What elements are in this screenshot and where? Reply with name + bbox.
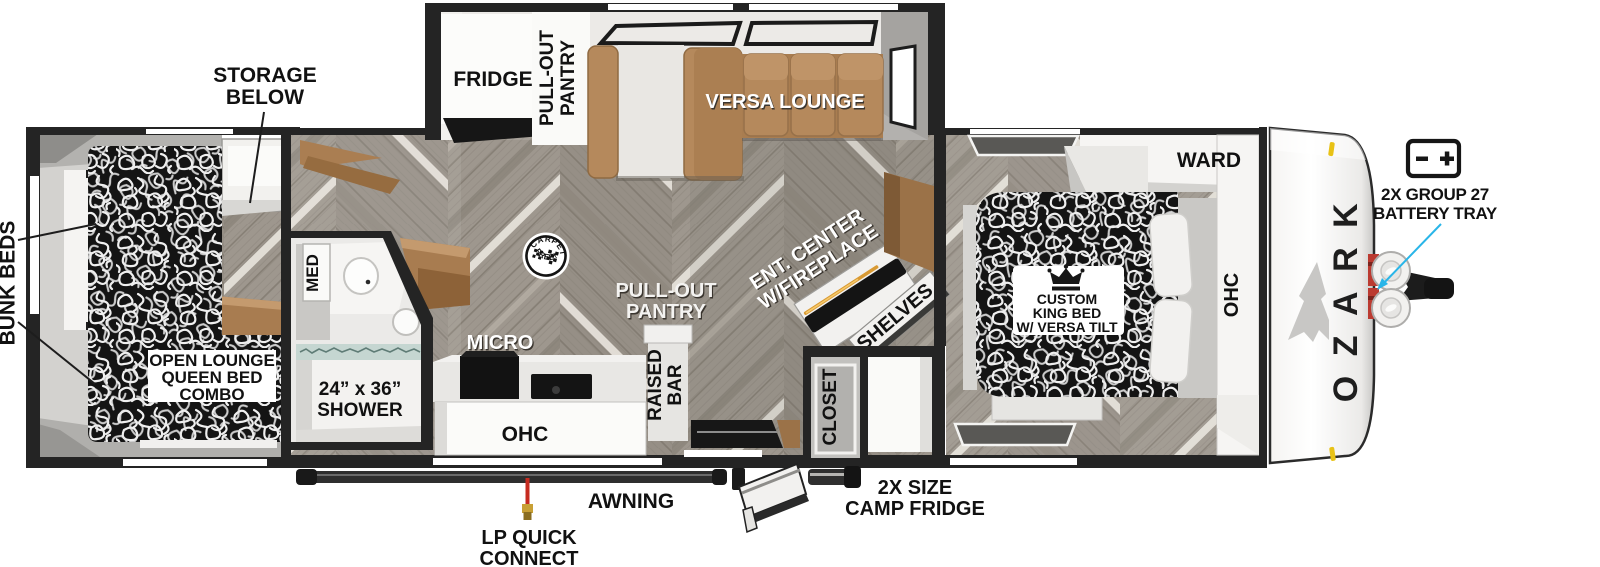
svg-text:24” x 36”: 24” x 36” xyxy=(319,379,401,400)
svg-text:FRIDGE: FRIDGE xyxy=(453,68,532,91)
svg-text:2X GROUP 27: 2X GROUP 27 xyxy=(1381,185,1489,204)
svg-text:PANTRY: PANTRY xyxy=(626,301,707,323)
svg-text:STORAGE: STORAGE xyxy=(213,64,316,87)
svg-text:2X SIZE: 2X SIZE xyxy=(878,477,952,499)
svg-text:MED: MED xyxy=(303,254,322,292)
svg-text:WARD: WARD xyxy=(1177,149,1241,172)
svg-text:SHOWER: SHOWER xyxy=(317,400,403,421)
svg-text:AWNING: AWNING xyxy=(588,490,674,513)
svg-text:OHC: OHC xyxy=(1221,273,1243,317)
svg-text:RAISED: RAISED xyxy=(645,349,666,421)
svg-text:PULL-OUT: PULL-OUT xyxy=(615,280,716,302)
svg-text:CLOSET: CLOSET xyxy=(820,368,841,445)
svg-text:OHC: OHC xyxy=(502,423,549,446)
svg-text:COMBO: COMBO xyxy=(179,385,244,404)
svg-text:CONNECT: CONNECT xyxy=(480,548,579,567)
svg-text:VERSA LOUNGE: VERSA LOUNGE xyxy=(705,91,864,113)
svg-text:W/ VERSA TILT: W/ VERSA TILT xyxy=(1016,319,1118,335)
svg-text:PULL-OUT: PULL-OUT xyxy=(537,30,558,126)
svg-text:MICRO: MICRO xyxy=(467,332,534,354)
svg-text:BUNK BEDS: BUNK BEDS xyxy=(0,221,20,346)
svg-text:OZARK: OZARK xyxy=(1327,184,1365,402)
svg-text:CAMP FRIDGE: CAMP FRIDGE xyxy=(845,498,985,520)
svg-text:BELOW: BELOW xyxy=(226,86,304,109)
svg-text:BATTERY TRAY: BATTERY TRAY xyxy=(1373,204,1498,223)
svg-text:LP QUICK: LP QUICK xyxy=(481,527,577,549)
svg-text:PANTRY: PANTRY xyxy=(558,40,579,116)
svg-text:BAR: BAR xyxy=(665,364,686,405)
